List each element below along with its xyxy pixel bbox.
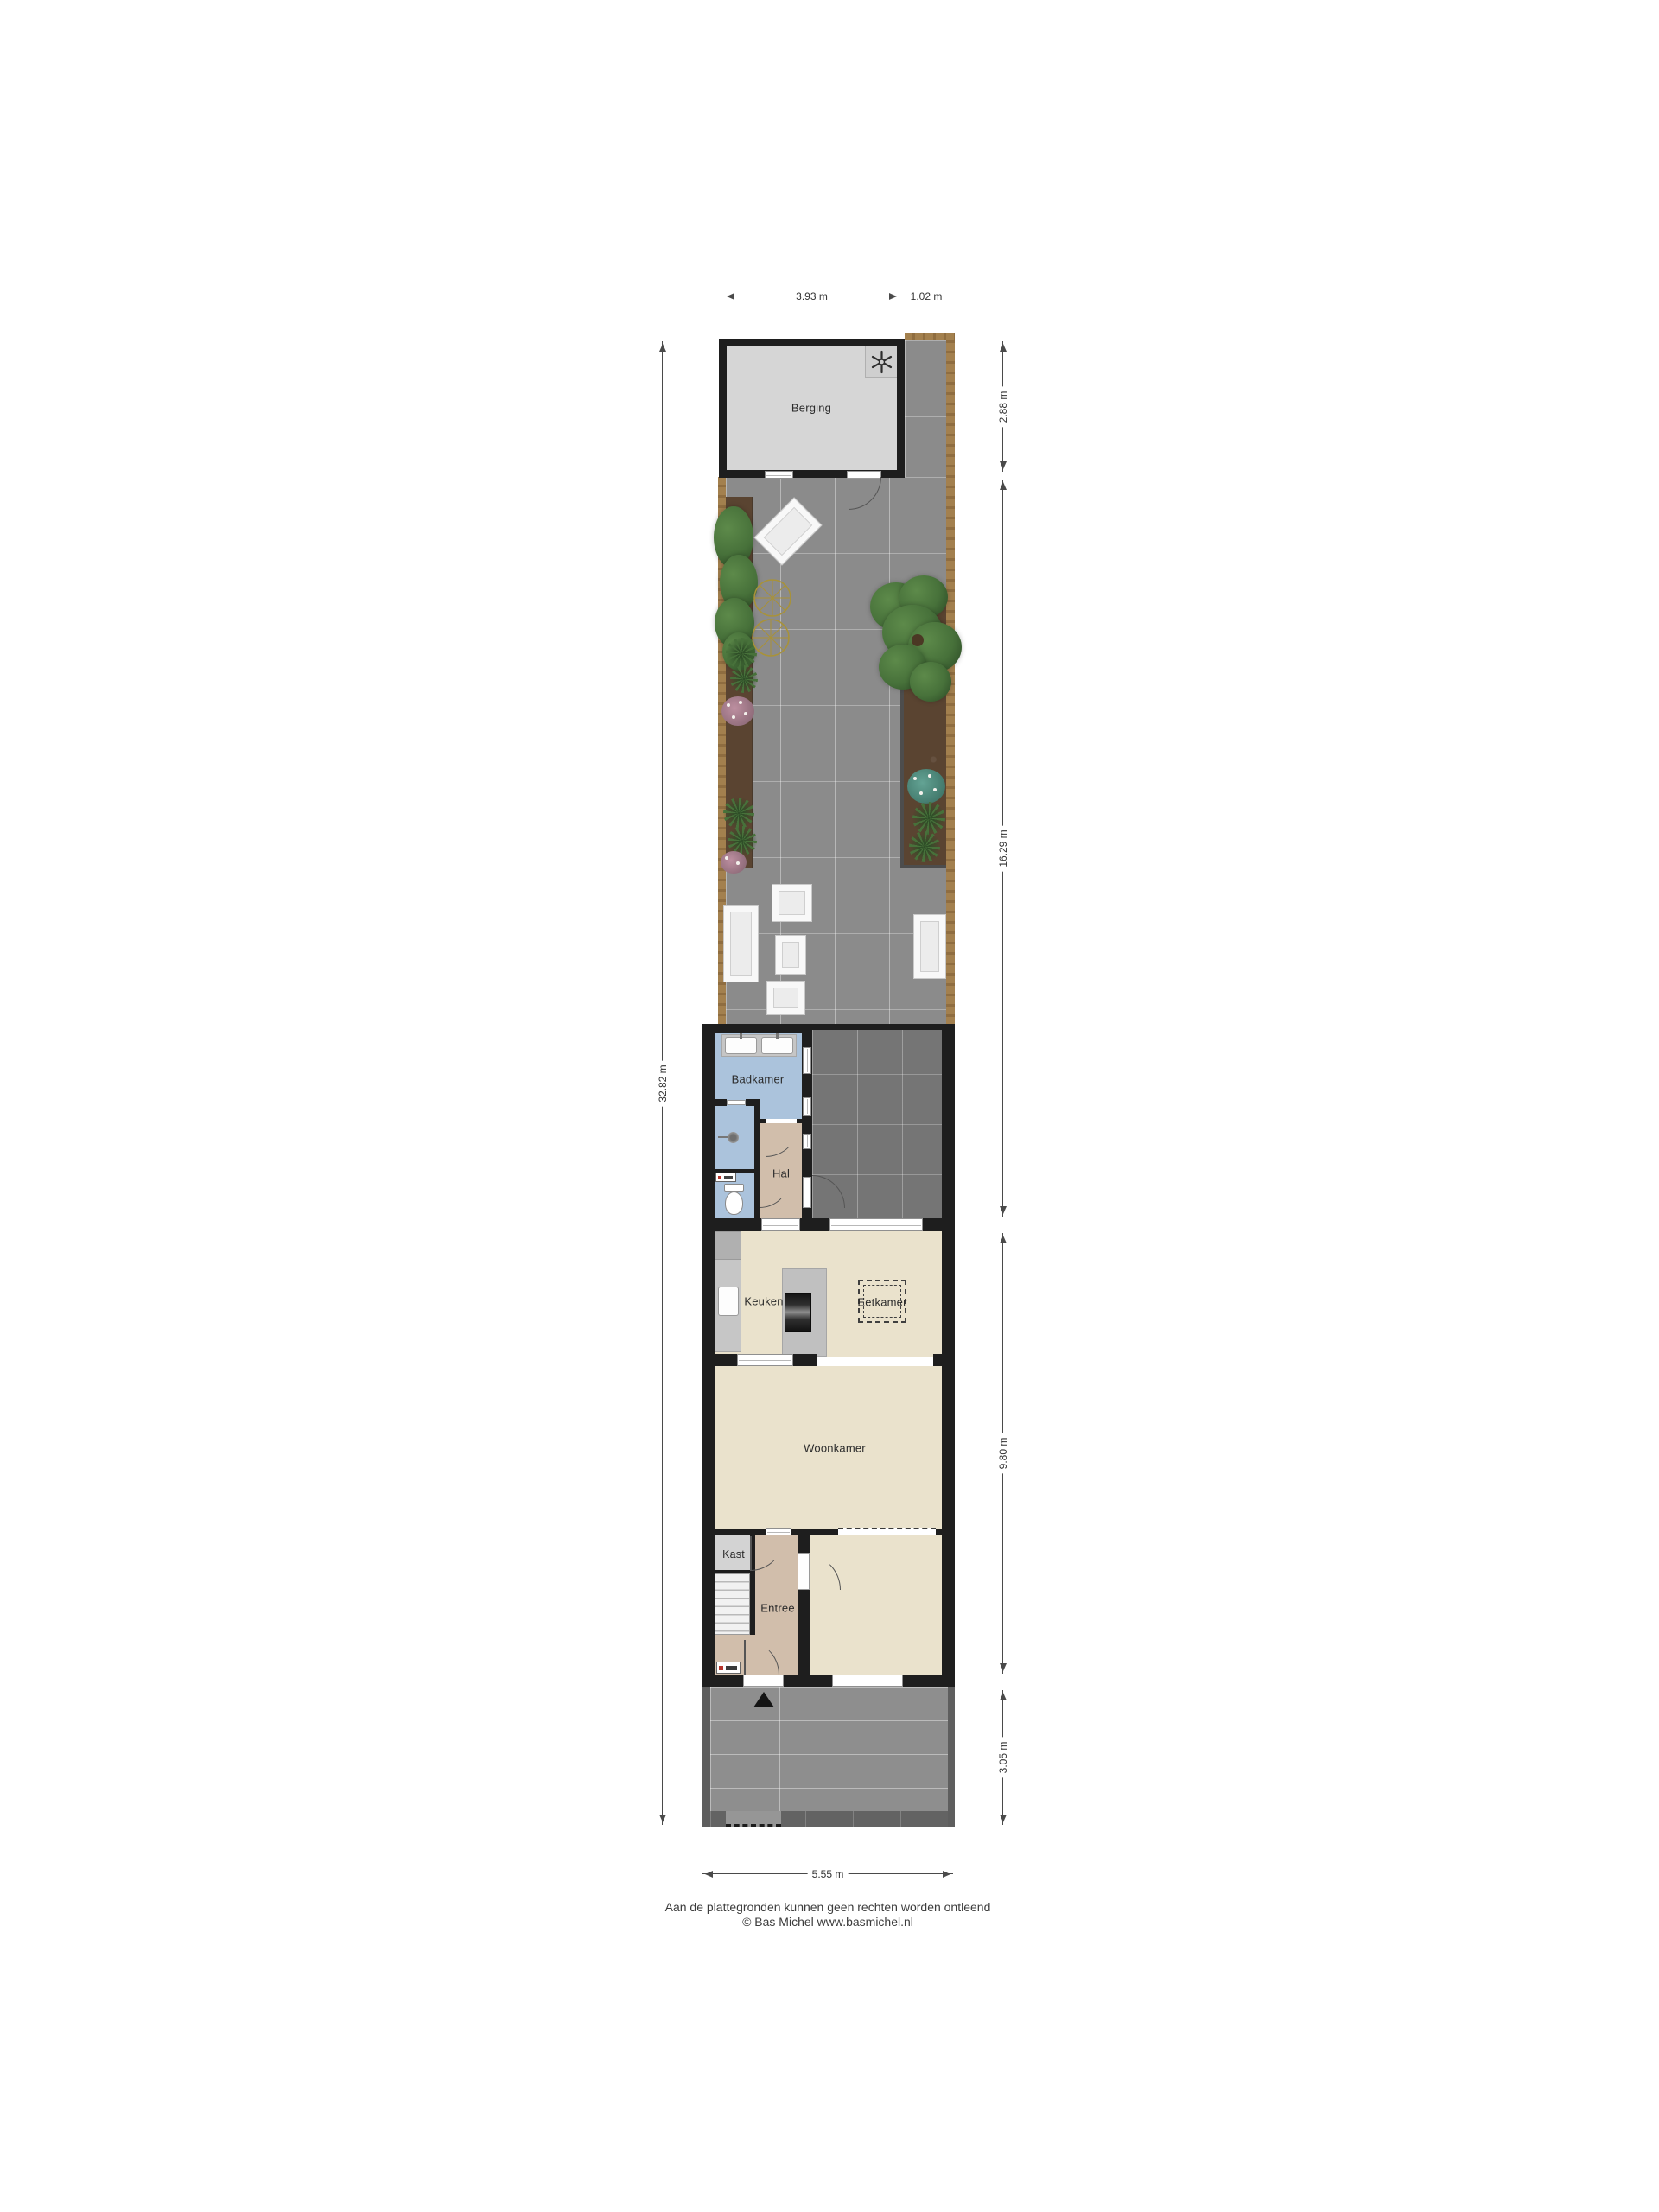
tap-icon xyxy=(776,1033,779,1039)
sink-icon xyxy=(761,1037,793,1054)
bath-divider-h xyxy=(715,1099,727,1106)
garden-pouf xyxy=(775,935,806,975)
shed-window xyxy=(765,471,793,479)
dim-label: 32.82 m xyxy=(657,1060,669,1106)
rear-wall xyxy=(715,1218,761,1231)
garden-pouf xyxy=(772,884,812,922)
rear-wall xyxy=(923,1218,942,1231)
dim-shed-depth: 2.88 m xyxy=(1002,341,1003,472)
room-label: Eetkamer xyxy=(857,1296,906,1309)
kitchen-terrace-window xyxy=(829,1218,923,1231)
meter-cupboard xyxy=(716,1662,741,1674)
radiator xyxy=(715,1173,736,1182)
dim-label: 2.88 m xyxy=(997,386,1009,427)
house-left-wall xyxy=(702,1218,715,1687)
dim-label: 16.29 m xyxy=(997,825,1009,871)
hall-window xyxy=(803,1134,811,1149)
serving-hatch-window xyxy=(737,1354,793,1366)
plant-icon xyxy=(909,831,940,862)
garden-path xyxy=(905,340,946,477)
dim-plot-depth: 32.82 m xyxy=(662,341,663,1825)
kitchen-appliance xyxy=(715,1231,741,1260)
room-keuken-eetkamer xyxy=(715,1231,942,1357)
toilet-icon xyxy=(725,1192,743,1215)
sink-icon xyxy=(725,1037,757,1054)
garden-sofa xyxy=(723,905,759,982)
plant-icon xyxy=(723,798,754,829)
disclaimer-text: Aan de plattegronden kunnen geen rechten… xyxy=(665,1900,991,1915)
sink-icon xyxy=(718,1287,739,1316)
credit-text: © Bas Michel www.basmichel.nl xyxy=(665,1915,991,1929)
shower-icon xyxy=(728,1132,739,1143)
plant-icon xyxy=(730,665,758,693)
front-wall xyxy=(784,1675,832,1687)
terrace-right-wall xyxy=(942,1024,955,1231)
floorplan-canvas: Berging Badkamer Hal xyxy=(0,0,1659,2212)
living-front-wall xyxy=(936,1529,942,1535)
room-label: Badkamer xyxy=(732,1073,785,1086)
room-label: Berging xyxy=(791,402,831,415)
living-front-wall xyxy=(715,1529,766,1535)
house-right-wall xyxy=(942,1218,955,1687)
stove-icon xyxy=(785,1293,811,1332)
hall-kitchen-door xyxy=(761,1218,800,1231)
entrance-arrow-icon xyxy=(753,1692,774,1707)
dim-plot-width: 5.55 m xyxy=(702,1873,953,1874)
toilet-icon xyxy=(724,1184,744,1192)
dim-label: 1.02 m xyxy=(906,290,947,302)
kitchen-living-wall xyxy=(715,1354,737,1366)
doormat-path xyxy=(726,1811,781,1827)
bath-divider-v2 xyxy=(754,1208,760,1218)
tap-icon xyxy=(740,1033,742,1039)
fence-top xyxy=(905,333,955,340)
front-border-left xyxy=(702,1687,710,1827)
front-door-leaf xyxy=(744,1640,746,1675)
dim-label: 3.05 m xyxy=(997,1738,1009,1778)
terrace-top-wall xyxy=(812,1024,955,1030)
front-border-right xyxy=(948,1687,955,1827)
garden-table xyxy=(913,914,946,979)
front-wall xyxy=(903,1675,955,1687)
front-window xyxy=(832,1675,903,1687)
tree-icon xyxy=(860,570,968,713)
washing-machine-icon xyxy=(865,346,897,378)
dim-house-depth: 9.80 m xyxy=(1002,1233,1003,1674)
rear-wall xyxy=(800,1218,829,1231)
bath-hall-door xyxy=(766,1119,797,1123)
bath-window xyxy=(803,1097,811,1116)
bicycle-wheels-icon xyxy=(750,577,795,660)
bath-window xyxy=(803,1047,811,1074)
dim-label: 5.55 m xyxy=(808,1868,849,1880)
dim-garden-depth: 16.29 m xyxy=(1002,480,1003,1217)
flowers-icon xyxy=(721,851,747,874)
front-wall xyxy=(702,1675,743,1687)
room-label: Keuken xyxy=(744,1295,783,1308)
dim-front-garden-depth: 3.05 m xyxy=(1002,1690,1003,1825)
dim-label: 3.93 m xyxy=(791,290,832,302)
room-label: Kast xyxy=(722,1548,745,1560)
dim-path-width: 1.02 m xyxy=(905,296,948,296)
living-front-wall xyxy=(791,1529,838,1535)
plant-icon xyxy=(912,802,945,835)
shower-arm-icon xyxy=(718,1136,728,1138)
entree-room-door xyxy=(798,1553,810,1590)
dim-label: 9.80 m xyxy=(997,1433,1009,1474)
kitchen-living-wall xyxy=(933,1354,942,1366)
flowers-icon xyxy=(721,696,754,726)
room-label: Entree xyxy=(760,1602,795,1615)
footer-disclaimer: Aan de plattegronden kunnen geen rechten… xyxy=(665,1900,991,1929)
garden-pouf xyxy=(766,981,805,1015)
room-label: Hal xyxy=(772,1167,790,1180)
kitchen-living-wall xyxy=(793,1354,817,1366)
flowers-icon xyxy=(907,769,945,804)
dim-shed-width: 3.93 m xyxy=(724,296,899,296)
front-terrace xyxy=(710,1687,948,1811)
room-label: Woonkamer xyxy=(804,1442,866,1455)
staircase xyxy=(715,1573,750,1635)
